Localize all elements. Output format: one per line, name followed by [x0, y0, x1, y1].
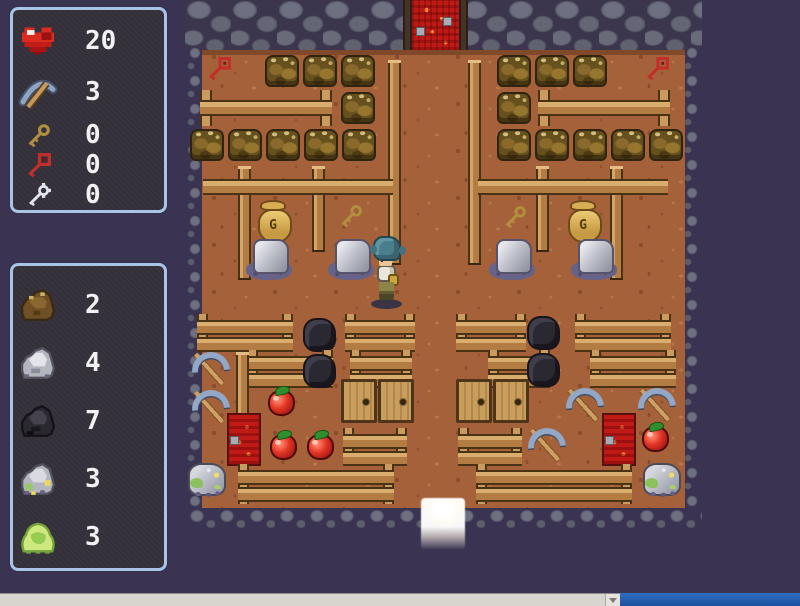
- gold-key-icon: [13, 122, 63, 149]
- rock-coal: [303, 318, 336, 352]
- pickaxe: [636, 386, 674, 424]
- counter-value: 0: [85, 182, 101, 208]
- fence: [200, 90, 332, 126]
- crate: [611, 129, 645, 161]
- crate: [342, 129, 376, 161]
- rock-coal: [303, 354, 336, 388]
- bench: [197, 314, 293, 352]
- rock-sparkle: [188, 463, 226, 496]
- rail: [478, 179, 668, 195]
- crate: [535, 129, 569, 161]
- stat-row: 3: [13, 64, 164, 120]
- counter-value: 3: [85, 466, 101, 492]
- door-red: [412, 0, 460, 50]
- crate: [265, 55, 299, 87]
- rock-gray: [570, 238, 618, 282]
- pickaxe: [190, 350, 228, 388]
- player: [370, 236, 404, 310]
- stats-panel: 203000: [10, 7, 167, 213]
- stat-row: 0: [13, 180, 164, 210]
- stat-row: 0: [13, 120, 164, 150]
- brown-ore-icon: [13, 288, 63, 322]
- apple: [307, 434, 334, 460]
- chevron-down-icon: [609, 598, 617, 603]
- bench: [575, 314, 671, 352]
- fence: [538, 90, 670, 126]
- counter-value: 4: [85, 350, 101, 376]
- crate: [497, 92, 531, 124]
- stat-row: 20: [13, 18, 164, 64]
- coal-ore-icon: [13, 404, 63, 438]
- slime-icon: [13, 520, 63, 554]
- post: [388, 60, 401, 265]
- doorpost: [403, 0, 412, 50]
- crate: [341, 55, 375, 87]
- bench2: [476, 464, 632, 504]
- bench: [590, 350, 676, 388]
- bench: [458, 428, 522, 466]
- crate: [573, 55, 607, 87]
- sparkle-ore-icon: [13, 462, 63, 496]
- moneybag: G: [566, 200, 600, 240]
- counter-value: 3: [85, 524, 101, 550]
- rock-gray: [327, 238, 375, 282]
- crate: [535, 55, 569, 87]
- cabinet: [341, 379, 377, 423]
- pickaxe-icon: [13, 72, 63, 112]
- cabinet: [493, 379, 529, 423]
- rail: [203, 179, 393, 195]
- crate: [266, 129, 300, 161]
- bench: [345, 314, 415, 352]
- apple: [270, 434, 297, 460]
- inventory-row: 3: [13, 508, 164, 566]
- inventory-row: 3: [13, 450, 164, 508]
- inventory-panel: 24733: [10, 263, 167, 571]
- heart-icon: [13, 25, 63, 57]
- doorpost: [459, 0, 468, 50]
- key-red: [204, 56, 234, 82]
- counter-value: 7: [85, 408, 101, 434]
- key-red: [642, 56, 672, 82]
- inventory-row: 2: [13, 276, 164, 334]
- door-red-sm: [602, 413, 636, 466]
- rock-sparkle: [643, 463, 681, 496]
- rock-coal: [527, 316, 560, 350]
- crate: [304, 129, 338, 161]
- pickaxe: [526, 426, 564, 464]
- crate: [303, 55, 337, 87]
- horizontal-scrollbar[interactable]: [0, 593, 620, 606]
- crate: [228, 129, 262, 161]
- rock-coal: [527, 353, 560, 387]
- crate: [341, 92, 375, 124]
- pickaxe: [190, 388, 228, 426]
- stat-row: 0: [13, 150, 164, 180]
- crate: [497, 55, 531, 87]
- post: [468, 60, 481, 265]
- exit-light: [421, 498, 465, 550]
- counter-value: 0: [85, 152, 101, 178]
- counter-value: 3: [85, 79, 101, 105]
- pickaxe: [564, 386, 602, 424]
- scrollbar-arrow-button[interactable]: [605, 594, 620, 606]
- game-screen: GG 203000 24733: [0, 0, 800, 606]
- crate: [190, 129, 224, 161]
- counter-value: 0: [85, 122, 101, 148]
- door-red-sm: [227, 413, 261, 466]
- crate: [497, 129, 531, 161]
- inventory-row: 4: [13, 334, 164, 392]
- apple: [642, 426, 669, 452]
- bench: [343, 428, 407, 466]
- inventory-row: 7: [13, 392, 164, 450]
- cabinet: [456, 379, 492, 423]
- bench2: [238, 464, 394, 504]
- silver-key-icon: [13, 182, 63, 209]
- cabinet: [378, 379, 414, 423]
- rock-gray: [488, 238, 536, 282]
- counter-value: 2: [85, 292, 101, 318]
- counter-value: 20: [85, 28, 116, 54]
- gray-ore-icon: [13, 346, 63, 380]
- crate: [573, 129, 607, 161]
- rock-gray: [245, 238, 293, 282]
- bench: [456, 314, 526, 352]
- moneybag: G: [256, 200, 290, 240]
- red-key-icon: [13, 152, 63, 179]
- key-gold: [500, 204, 530, 230]
- key-gold: [336, 203, 366, 229]
- crate: [649, 129, 683, 161]
- taskbar-strip: [620, 593, 800, 606]
- apple: [268, 390, 295, 416]
